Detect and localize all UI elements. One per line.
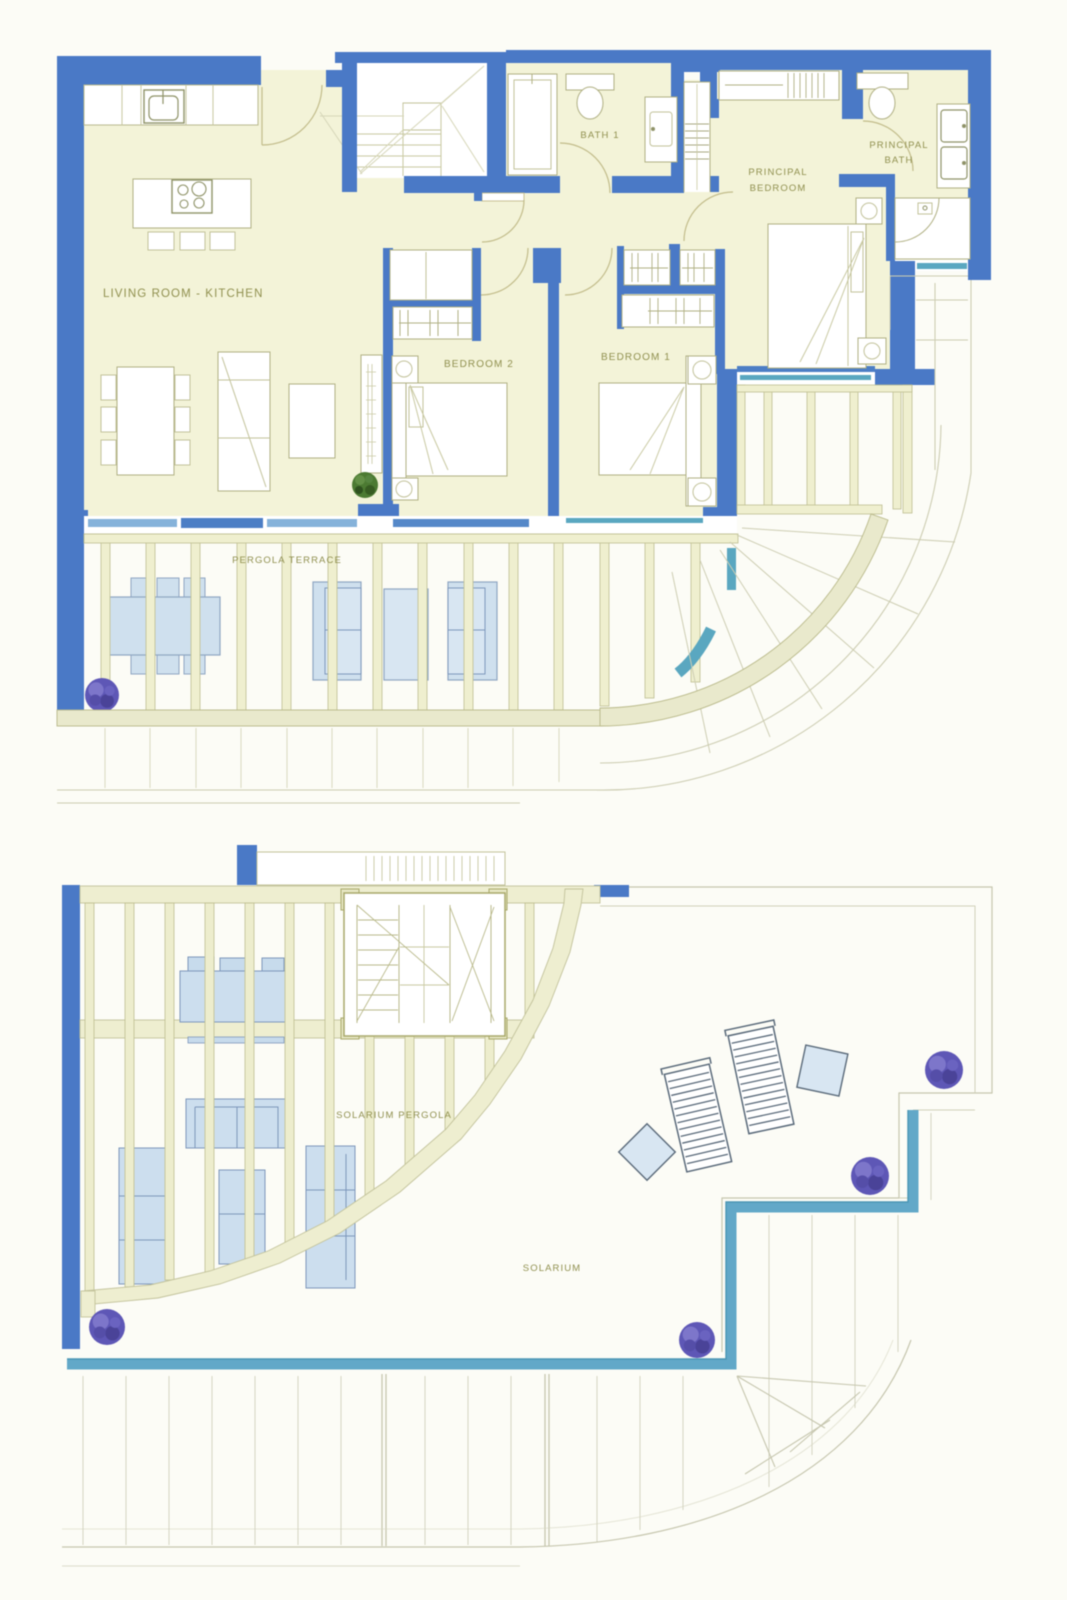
- svg-text:BEDROOM 2: BEDROOM 2: [444, 359, 514, 370]
- svg-text:SOLARIUM PERGOLA: SOLARIUM PERGOLA: [336, 1110, 452, 1121]
- svg-text:BATH 1: BATH 1: [580, 130, 619, 141]
- svg-text:BEDROOM 1: BEDROOM 1: [601, 352, 671, 363]
- svg-text:LIVING ROOM - KITCHEN: LIVING ROOM - KITCHEN: [103, 288, 263, 300]
- svg-text:PERGOLA TERRACE: PERGOLA TERRACE: [232, 555, 342, 566]
- svg-text:BEDROOM: BEDROOM: [750, 183, 807, 194]
- svg-text:PRINCIPAL: PRINCIPAL: [869, 140, 928, 151]
- svg-text:SOLARIUM: SOLARIUM: [523, 1263, 581, 1274]
- svg-text:BATH: BATH: [884, 155, 913, 166]
- svg-text:PRINCIPAL: PRINCIPAL: [748, 167, 807, 178]
